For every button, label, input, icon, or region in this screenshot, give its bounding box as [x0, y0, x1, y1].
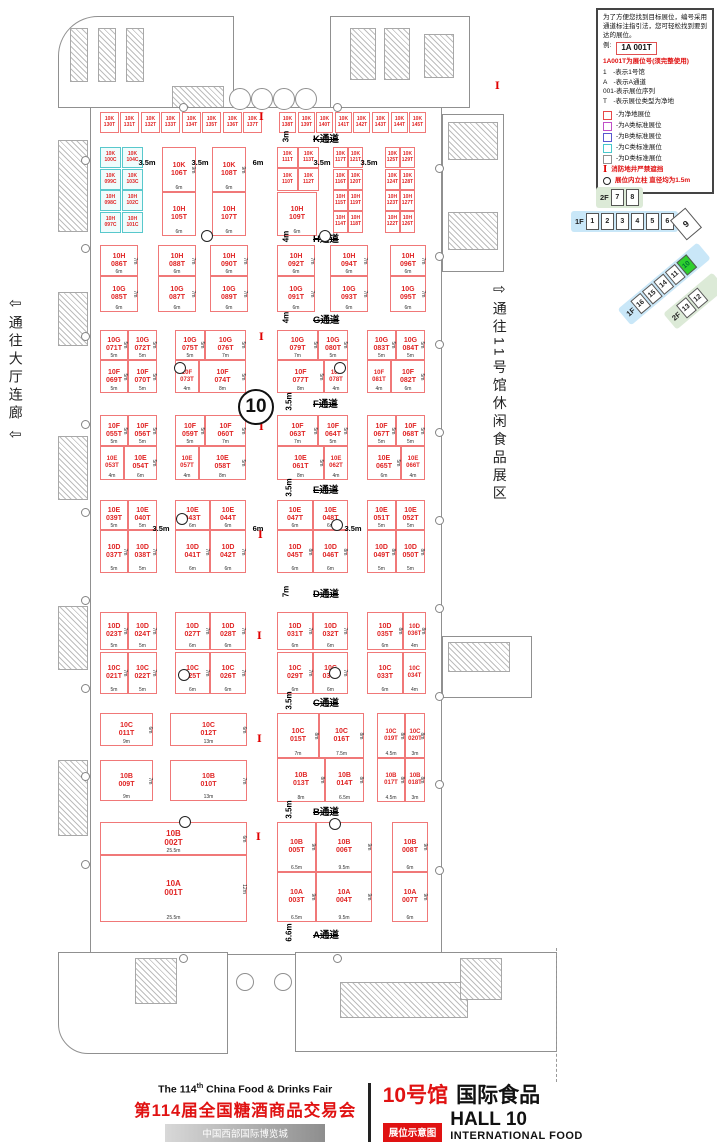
booth-number: 073T: [180, 377, 194, 384]
booth-height-label: 9m: [422, 894, 427, 901]
minimap-hall-4: 4: [631, 213, 644, 230]
booth-number: 087T: [169, 294, 185, 302]
hall-number: 10: [245, 396, 266, 418]
pillar-marker: [174, 362, 186, 374]
booth-hall-row: 10G: [342, 286, 355, 294]
booth-10B-005T: 10B005T6.5m9m: [277, 822, 316, 872]
booth-width-label: 6m: [176, 644, 209, 649]
booth-10B-018T: 10B018T3m8m: [405, 758, 425, 802]
booth-hall-row: 10B: [295, 772, 308, 780]
booth-hall-row: 10E: [378, 455, 390, 463]
booth-hall-row: 10A: [338, 889, 351, 897]
booth-height-label: 7m: [240, 548, 245, 555]
booth-10D-031T: 10D031T6m7m: [277, 612, 313, 650]
pillar-marker: [329, 667, 341, 679]
booth-height-label: 7m: [204, 670, 209, 677]
booth-hall-row: 10D: [324, 544, 337, 552]
booth-number: 096T: [400, 261, 416, 269]
booth-hall-row: 10H: [171, 253, 184, 261]
booth-10H-102C: 10H102C: [122, 190, 143, 211]
booth-10D-041T: 10D041T6m7m: [175, 530, 210, 573]
booth-10B-010T: 10B010T13m7m: [170, 760, 247, 801]
booth-width-label: 6m: [331, 306, 367, 311]
booth-number: 051T: [374, 515, 390, 523]
legend-note: 1A001T为展位号(须完整使用): [603, 58, 707, 67]
booth-10D-045T: 10D045T6m8m: [277, 530, 313, 573]
booth-hall-row: 10E: [408, 456, 419, 463]
booth-number: 095T: [400, 294, 416, 302]
booth-number: 067T: [374, 431, 390, 439]
booth-10F-060T: 10F060T7m5m: [205, 415, 246, 446]
booth-hall-row: 10H: [343, 253, 356, 261]
booth-hall-row: 10A: [404, 889, 417, 897]
booth-10H-101C: 10H101C: [122, 212, 143, 233]
booth-width-label: 9.5m: [317, 866, 371, 871]
booth-type-swatch: [603, 133, 612, 142]
booth-10K-140T: 10K140T: [316, 112, 333, 133]
booth-number: 086T: [111, 261, 127, 269]
dimension-label: 3.5m: [313, 158, 330, 167]
booth-height-label: 7m: [204, 548, 209, 555]
booth-number: 130T: [104, 123, 115, 129]
booth-width-label: 5m: [397, 354, 424, 359]
booth-number: 075T: [182, 345, 198, 353]
booth-width-label: 6m: [213, 186, 245, 191]
booth-number: 098C: [105, 201, 117, 207]
booth-number: 023T: [106, 631, 122, 639]
building-structure: [58, 606, 88, 670]
booth-height-label: 5m: [390, 342, 395, 349]
booth-hall-row: 10D: [136, 544, 149, 552]
booth-hall-row: 10D: [136, 623, 149, 631]
booth-width-label: 7m: [206, 440, 245, 445]
booth-10F-064T: 10F064T5m5m: [318, 415, 348, 446]
booth-10K-111T: 10K111T: [277, 147, 298, 168]
booth-hall-row: 10G: [107, 337, 120, 345]
booth-10H-107T: 10H107T6m: [212, 192, 246, 236]
booth-10G-079T: 10G079T7m5m: [277, 330, 318, 360]
legend-example-booth: 1A 001T: [616, 42, 656, 55]
booth-10K-145T: 10K145T: [409, 112, 426, 133]
booth-height-label: 7m: [122, 670, 127, 677]
aisle-width-D: 7m: [281, 586, 290, 598]
aisle-width-H: 4m: [281, 231, 290, 243]
booth-number: 015T: [290, 736, 306, 744]
booth-10E-044T: 10E044T6m: [210, 500, 246, 530]
booth-width-label: 6m: [392, 387, 424, 392]
booth-number: 094T: [341, 261, 357, 269]
booth-number: 049T: [374, 552, 390, 560]
booth-width-label: 6m: [278, 567, 312, 572]
booth-10K-130T: 10K130T: [100, 112, 119, 133]
booth-10C-021T: 10C021T5m7m: [100, 652, 128, 694]
entrance-arc: [236, 973, 254, 991]
booth-number: 072T: [135, 345, 151, 353]
booth-height-label: 8m: [342, 548, 347, 555]
booth-height-label: 7m: [420, 291, 425, 298]
booth-hall-row: 10C: [289, 665, 302, 673]
booth-width-label: 8m: [200, 474, 245, 479]
right-arrow-icon: ⇨: [493, 282, 506, 297]
hall-title-block: 10号馆国际食品 展位示意图 HALL 10 INTERNATIONAL FOO…: [383, 1083, 583, 1142]
booth-10K-100C: 10K100C: [100, 147, 121, 168]
booth-number: 070T: [135, 377, 151, 385]
entrance-arc: [274, 973, 292, 991]
legend-box: 为了方便您找到目标展位，编号采用通道标注指引法，您可轻松找到要到达的展位。 例:…: [596, 8, 714, 194]
pillar-marker: [334, 362, 346, 374]
booth-height-label: 5m: [318, 460, 323, 467]
booth-width-label: 25.5m: [101, 916, 246, 921]
booth-height-label: 7m: [342, 628, 347, 635]
booth-hall-row: 10F: [402, 369, 414, 377]
minimap-hall-3: 3: [616, 213, 629, 230]
booth-hall-row: 10B: [202, 773, 215, 781]
booth-number: 114T: [335, 222, 346, 228]
venue-banner: 中国西部国际博览城: [165, 1124, 325, 1142]
booth-number: 081T: [372, 377, 386, 384]
booth-number: 038T: [135, 552, 151, 560]
booth-number: 057T: [180, 463, 194, 470]
booth-width-label: 6m: [368, 644, 402, 649]
booth-10B-009T: 10B009T9m7m: [100, 760, 153, 801]
booth-width-label: 6m: [101, 270, 137, 275]
booth-10H-097C: 10H097C: [100, 212, 121, 233]
booth-10A-003T: 10A003T6.5m9m: [277, 872, 316, 922]
booth-hall-row: 10D: [222, 544, 235, 552]
booth-height-label: 7m: [420, 257, 425, 264]
booth-hall-row: 10F: [136, 369, 148, 377]
booth-number: 001T: [164, 889, 182, 898]
booth-number: 050T: [403, 552, 419, 560]
building-structure: [135, 958, 177, 1004]
booth-number: 044T: [220, 515, 236, 523]
booth-number: 076T: [218, 345, 234, 353]
booth-number: 003T: [289, 897, 305, 905]
booth-number: 099C: [105, 180, 117, 186]
booth-height-label: 12m: [241, 884, 246, 894]
booth-hall-row: 10B: [338, 839, 351, 847]
booth-hall-row: 10F: [375, 423, 387, 431]
booth-width-label: 6.5m: [278, 916, 315, 921]
booth-height-label: 8m: [390, 548, 395, 555]
booth-width-label: 6m: [331, 270, 367, 275]
boundary-dashline: [556, 948, 557, 1082]
booth-width-label: 6m: [163, 230, 195, 235]
booth-height-label: 5m: [240, 460, 245, 467]
booth-10K-143T: 10K143T: [372, 112, 389, 133]
booth-10K-141T: 10K141T: [335, 112, 352, 133]
booth-number: 109T: [289, 214, 305, 222]
booth-10H-118T: 10H118T: [348, 211, 363, 233]
booth-height-label: 8m: [420, 628, 425, 635]
booth-10D-024T: 10D024T5m7m: [128, 612, 157, 650]
booth-hall-row: 10H: [223, 253, 236, 261]
wall-column-marker: [435, 164, 444, 173]
booth-number: 142T: [356, 123, 367, 129]
building-structure: [126, 28, 144, 82]
booth-hall-row: 10E: [182, 456, 193, 463]
booth-type-label: -为C类标准展位: [616, 144, 662, 153]
booth-height-label: 7m: [307, 628, 312, 635]
booth-10K-136T: 10K136T: [223, 112, 242, 133]
wall-column-marker: [435, 428, 444, 437]
booth-10D-038T: 10D038T5m7m: [128, 530, 157, 573]
booth-width-label: 5m: [129, 354, 156, 359]
entrance-arc: [295, 88, 317, 110]
wall-column-marker: [435, 604, 444, 613]
booth-type-label: -为A类标准展位: [616, 122, 662, 131]
booth-number: 064T: [325, 431, 341, 439]
dimension-label: 3.5m: [191, 158, 208, 167]
booth-number: 016T: [334, 736, 350, 744]
booth-hall-row: 10G: [289, 286, 302, 294]
booth-10E-039T: 10E039T5m: [100, 500, 128, 530]
booth-height-label: 5m: [240, 342, 245, 349]
booth-width-label: 5m: [101, 567, 127, 572]
booth-10F-063T: 10F063T7m5m: [277, 415, 318, 446]
booth-height-label: 7m: [190, 291, 195, 298]
booth-width-label: 5m: [368, 440, 395, 445]
entrance-arc: [251, 88, 273, 110]
booth-10G-083T: 10G083T5m5m: [367, 330, 396, 360]
wall-column-marker: [81, 772, 90, 781]
booth-width-label: 5m: [129, 387, 156, 392]
booth-type-label: -为B类标准展位: [616, 133, 662, 142]
minimap-floor-label: 2F: [600, 193, 609, 202]
booth-hall-row: 10D: [404, 544, 417, 552]
footer: The 114th China Food & Drinks Fair 第114届…: [0, 1083, 717, 1142]
booth-hall-row: 10D: [186, 623, 199, 631]
booth-height-label: 8m: [319, 777, 324, 784]
booth-10H-126T: 10H126T: [400, 211, 415, 233]
booth-hall-row: 10F: [404, 423, 416, 431]
booth-10B-008T: 10B008T6m9m: [392, 822, 428, 872]
booth-10K-110T: 10K110T: [277, 168, 298, 191]
booth-hall-row: 10E: [134, 455, 146, 463]
aisle-label-G: G通道: [313, 312, 339, 326]
pillar-marker: [319, 230, 331, 242]
booth-width-label: 7m: [278, 440, 317, 445]
booth-hall-row: 10G: [291, 337, 304, 345]
booth-width-label: 6m: [159, 306, 195, 311]
booth-number: 026T: [220, 673, 236, 681]
booth-hall-row: 10C: [108, 665, 121, 673]
wall-column-marker: [435, 866, 444, 875]
booth-10H-086T: 10H086T6m7m: [100, 245, 138, 276]
aisle-width-F: 3.5m: [285, 392, 294, 410]
fire-well-marker: I: [257, 632, 262, 642]
booth-10E-052T: 10E052T5m: [396, 500, 425, 530]
booth-hall-row: 10E: [331, 456, 342, 463]
booth-hall-row: 10B: [120, 773, 133, 781]
minimap-hall-2: 2: [601, 213, 614, 230]
fire-well-marker: I: [259, 333, 264, 343]
booth-height-label: 7m: [242, 257, 247, 264]
booth-hall-row: 10B: [290, 839, 303, 847]
booth-height-label: 6m: [241, 726, 246, 733]
minimap-floor2-band: 2F78: [596, 187, 643, 208]
booth-width-label: 6m: [391, 306, 425, 311]
booth-10D-046T: 10D046T6m8m: [313, 530, 348, 573]
building-structure: [384, 28, 410, 80]
booth-width-label: 5m: [397, 524, 424, 529]
booth-number: 065T: [376, 463, 392, 471]
booth-10K-103C: 10K103C: [122, 169, 143, 190]
booth-height-label: 7m: [122, 548, 127, 555]
booth-number: 092T: [288, 261, 304, 269]
booth-10C-034T: 10C034T4m: [403, 652, 426, 694]
booth-10A-004T: 10A004T9.5m9m: [316, 872, 372, 922]
booth-number: 082T: [400, 377, 416, 385]
booth-10C-011T: 10C011T9m6m: [100, 713, 153, 746]
fire-well-marker: I: [257, 735, 262, 745]
booth-width-label: 6m: [163, 186, 195, 191]
booth-number: 137T: [247, 123, 258, 129]
booth-hall-row: 10G: [326, 337, 339, 345]
booth-number: 061T: [293, 463, 309, 471]
legend-code-line: 1 -表示1号馆: [603, 69, 707, 78]
booth-height-label: 9m: [366, 844, 371, 851]
booth-width-label: 5m: [368, 567, 395, 572]
booth-hall-row: 10G: [136, 337, 149, 345]
legend-fire-note: 消防地井严禁遮挡: [611, 166, 663, 175]
booth-width-label: 5m: [101, 524, 127, 529]
booth-10E-047T: 10E047T6m: [277, 500, 313, 530]
booth-width-label: 7m: [206, 354, 245, 359]
booth-10F-074T: 10F074T8m5m: [199, 360, 246, 393]
booth-10D-032T: 10D032T6m7m: [313, 612, 348, 650]
fire-well-marker: I: [256, 833, 261, 843]
booth-10G-080T: 10G080T5m5m: [318, 330, 348, 360]
booth-height-label: 5m: [122, 342, 127, 349]
booth-height-label: 7m: [309, 257, 314, 264]
booth-width-label: 6m: [278, 306, 314, 311]
booth-hall-row: 10F: [184, 423, 196, 431]
booth-hall-row: 10C: [409, 666, 420, 673]
booth-width-label: 8m: [200, 387, 245, 392]
booth-height-label: 8m: [307, 548, 312, 555]
building-structure: [58, 140, 88, 232]
wall-column-marker: [81, 596, 90, 605]
booth-height-label: 5m: [199, 427, 204, 434]
booth-width-label: 5m: [101, 354, 127, 359]
direction-left-text: 通往大厅连廊: [8, 315, 23, 423]
booth-number: 097C: [105, 223, 117, 229]
booth-hall-row: 10E: [136, 507, 148, 515]
booth-10C-026T: 10C026T6m7m: [210, 652, 246, 694]
booth-width-label: 6m: [211, 524, 245, 529]
booth-hall-row: 10E: [107, 456, 118, 463]
booth-width-label: 6m: [101, 306, 137, 311]
booth-10G-093T: 10G093T6m7m: [330, 276, 368, 312]
booth-10G-076T: 10G076T7m5m: [205, 330, 246, 360]
minimap-hall-1: 1: [586, 213, 599, 230]
booth-hall-row: 10G: [170, 286, 183, 294]
legend-type-list: -为净地展位-为A类标准展位-为B类标准展位-为C类标准展位-为D类标准展位: [603, 111, 707, 164]
booth-hall-row: 10C: [136, 665, 149, 673]
booth-number: 060T: [218, 431, 234, 439]
booth-number: 032T: [323, 631, 339, 639]
booth-number: 022T: [135, 673, 151, 681]
booth-hall-row: 10K: [223, 162, 236, 170]
booth-height-label: 5m: [419, 342, 424, 349]
booth-height-label: 8m: [419, 548, 424, 555]
booth-number: 122T: [387, 222, 398, 228]
booth-number: 139T: [301, 123, 312, 129]
hall-title-en-row: 展位示意图 HALL 10 INTERNATIONAL FOOD: [383, 1110, 583, 1142]
booth-hall-row: 10F: [327, 423, 339, 431]
booth-hall-row: 10G: [219, 337, 232, 345]
booth-10K-112T: 10K112T: [298, 168, 319, 191]
booth-height-label: 7m: [122, 628, 127, 635]
booth-10D-027T: 10D027T6m7m: [175, 612, 210, 650]
booth-height-label: 7m: [307, 670, 312, 677]
booth-10H-109T: 10H109T6m: [277, 192, 317, 236]
booth-10E-051T: 10E051T5m: [367, 500, 396, 530]
booth-number: 141T: [338, 123, 349, 129]
booth-number: 074T: [215, 377, 231, 385]
booth-number: 066T: [406, 463, 420, 470]
pillar-marker: [331, 519, 343, 531]
minimap-floor-label: 1F: [575, 217, 584, 226]
booth-10E-053T: 10E053T4m: [100, 446, 124, 480]
booth-hall-row: 10E: [375, 507, 387, 515]
legend-code-line: T -表示展位类型为净地: [603, 98, 707, 107]
booth-10H-119T: 10H119T: [348, 190, 363, 211]
booth-width-label: 6m: [176, 688, 209, 693]
booth-height-label: 7m: [132, 291, 137, 298]
wall-column-marker: [179, 954, 188, 963]
booth-width-label: 5m: [176, 354, 204, 359]
booth-number: 002T: [164, 839, 182, 848]
booth-hall-row: 10G: [112, 286, 125, 294]
booth-10B-006T: 10B006T9.5m9m: [316, 822, 372, 872]
wall-column-marker: [179, 103, 188, 112]
booth-number: 028T: [220, 631, 236, 639]
booth-number: 107T: [221, 214, 237, 222]
booth-width-label: 6m: [314, 567, 347, 572]
booth-hall-row: 10D: [108, 544, 121, 552]
booth-hall-row: 10D: [289, 544, 302, 552]
booth-number: 058T: [215, 463, 231, 471]
booth-width-label: 4m: [176, 474, 198, 479]
booth-height-label: 5m: [342, 427, 347, 434]
booth-hall-row: 10H: [173, 206, 186, 214]
legend-type-row: -为D类标准展位: [603, 155, 707, 164]
booth-number: 132T: [145, 123, 156, 129]
booth-number: 091T: [288, 294, 304, 302]
booth-hall-row: 10H: [223, 206, 236, 214]
booth-hall-row: 10E: [404, 507, 416, 515]
booth-height-label: 5m: [419, 373, 424, 380]
booth-number: 033T: [377, 673, 393, 681]
booth-10C-016T: 10C016T7.5m8m: [319, 713, 364, 758]
booth-10E-066T: 10E066T4m: [401, 446, 425, 480]
booth-number: 120T: [350, 180, 361, 186]
booth-10D-035T: 10D035T6m8m: [367, 612, 403, 650]
booth-10H-127T: 10H127T: [400, 190, 415, 211]
booth-number: 006T: [336, 847, 352, 855]
booth-10H-090T: 10H090T6m7m: [210, 245, 248, 276]
booth-number: 035T: [377, 631, 393, 639]
booth-number: 052T: [403, 515, 419, 523]
pillar-marker: [176, 513, 188, 525]
booth-height-label: 7m: [242, 291, 247, 298]
booth-number: 005T: [289, 847, 305, 855]
booth-number: 059T: [182, 431, 198, 439]
booth-height-label: 5m: [312, 427, 317, 434]
booth-hall-row: 10D: [379, 623, 392, 631]
